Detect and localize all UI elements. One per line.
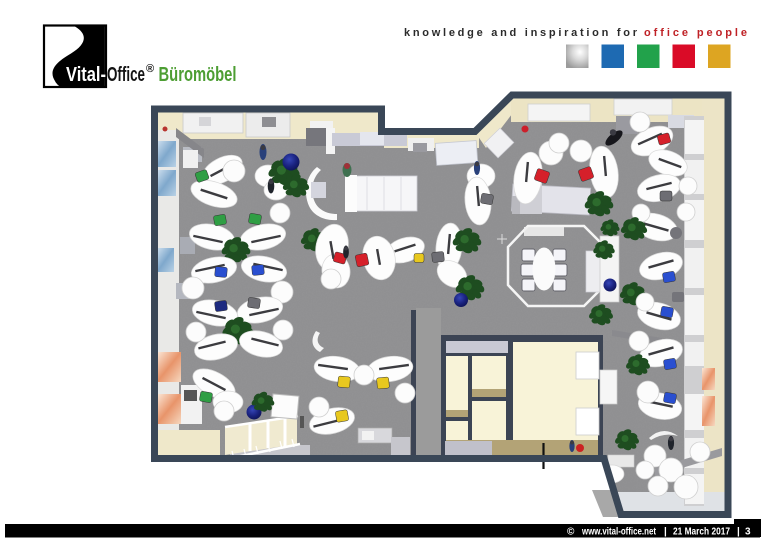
svg-text:www.vital-office.net: www.vital-office.net	[581, 527, 656, 538]
svg-text:Büromöbel: Büromöbel	[159, 63, 237, 86]
svg-text:|: |	[737, 527, 740, 538]
svg-text:office people: office people	[644, 27, 747, 39]
svg-text:©: ©	[567, 527, 575, 538]
svg-text:®: ®	[146, 63, 154, 75]
svg-text:3: 3	[745, 527, 751, 538]
svg-text:21 March 2017: 21 March 2017	[673, 527, 730, 538]
svg-text:knowledge and inspiration for: knowledge and inspiration for	[404, 27, 638, 39]
svg-text:Office: Office	[107, 63, 145, 86]
svg-text:|: |	[664, 527, 667, 538]
svg-text:Vital-: Vital-	[66, 63, 106, 86]
